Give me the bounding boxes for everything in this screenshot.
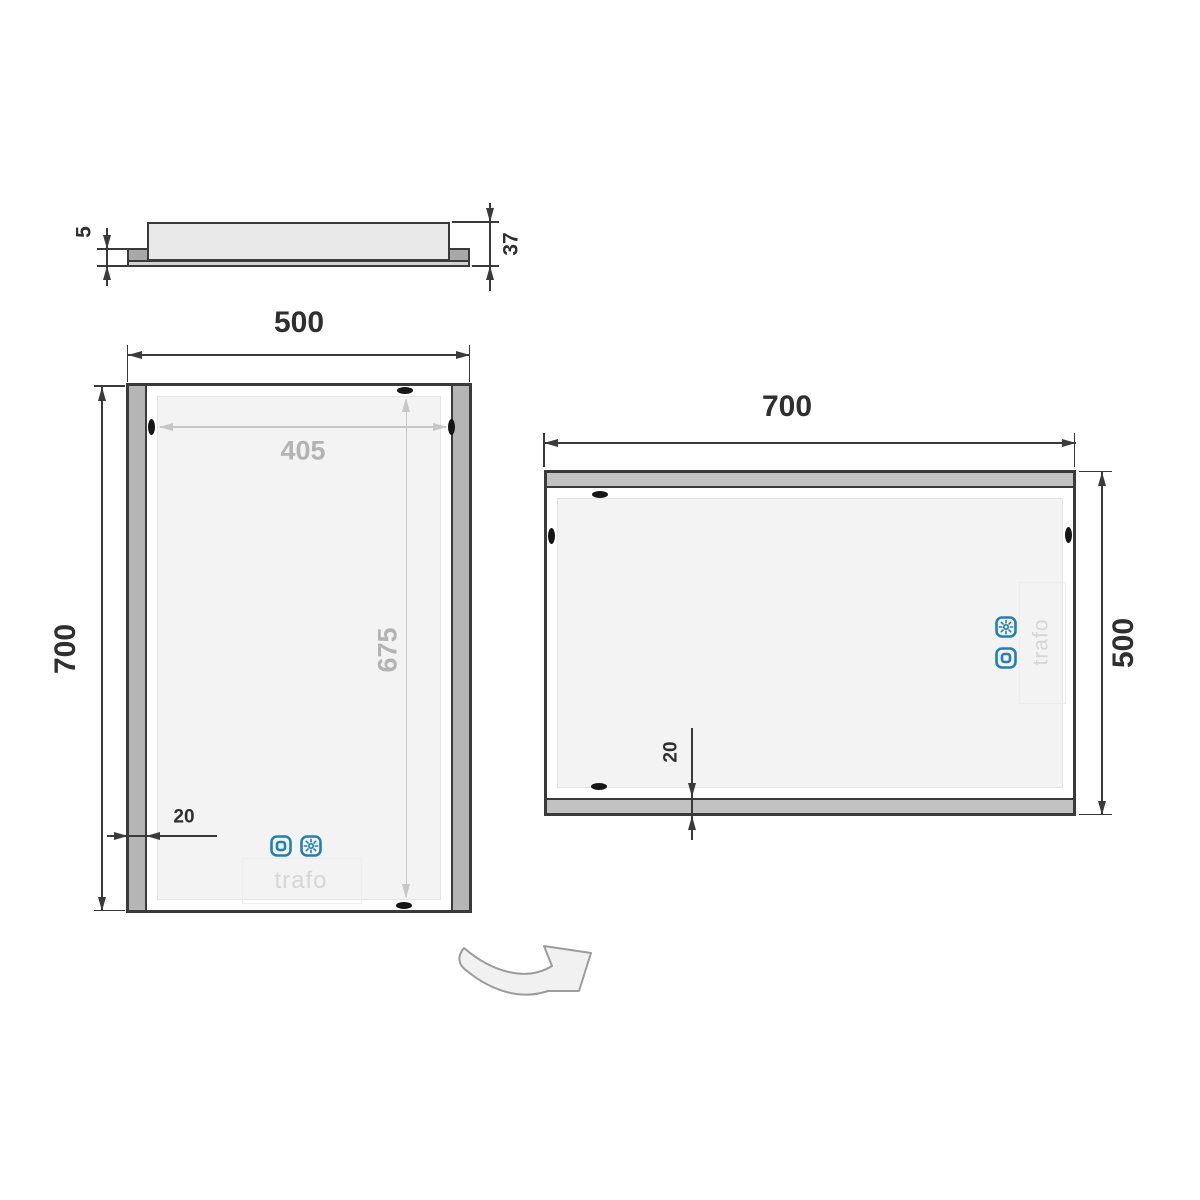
arrowhead-right-icon bbox=[114, 832, 128, 840]
portrait-height-label: 700 bbox=[51, 624, 81, 674]
arrowhead-left-icon bbox=[544, 439, 558, 447]
landscape-mirror-surface bbox=[557, 498, 1063, 788]
rotate-arrow-icon bbox=[440, 920, 620, 1030]
profile-depth-label: 37 bbox=[501, 232, 522, 255]
landscape-height-label: 500 bbox=[1109, 618, 1139, 668]
profile-thickness-ext-top bbox=[97, 248, 127, 250]
portrait-illum-width-dim-line bbox=[160, 426, 446, 428]
portrait-width-dim-line bbox=[128, 354, 470, 356]
portrait-mount-dot-bottom bbox=[396, 902, 412, 909]
technical-drawing-canvas: 5 37 405 675 500 700 20 bbox=[0, 0, 1200, 1200]
portrait-strip-width-label: 20 bbox=[173, 808, 194, 827]
arrowhead-down-icon bbox=[103, 235, 111, 249]
landscape-height-dim-line bbox=[1101, 472, 1103, 815]
portrait-width-ext-right bbox=[469, 345, 471, 382]
brightness-icon bbox=[995, 616, 1017, 638]
arrowhead-down-icon bbox=[402, 884, 410, 898]
landscape-height-ext-top bbox=[1079, 471, 1112, 473]
landscape-mount-dot-left bbox=[548, 528, 555, 544]
brightness-icon bbox=[300, 835, 322, 857]
landscape-led-strip-bottom bbox=[547, 798, 1073, 813]
arrowhead-up-icon bbox=[688, 816, 696, 830]
portrait-led-strip-left bbox=[129, 386, 147, 910]
touch-switch-icon bbox=[995, 647, 1017, 669]
landscape-width-ext-right bbox=[1074, 433, 1076, 467]
portrait-height-dim-line bbox=[101, 387, 103, 911]
portrait-mount-dot-left bbox=[148, 419, 155, 435]
landscape-width-label: 700 bbox=[762, 392, 812, 422]
profile-base-strip bbox=[127, 260, 470, 267]
landscape-mount-dot-bottom bbox=[591, 783, 607, 790]
arrowhead-left-icon bbox=[159, 423, 173, 431]
profile-mirror-body bbox=[147, 222, 450, 261]
arrowhead-down-icon bbox=[486, 208, 494, 222]
landscape-led-strip-top bbox=[547, 473, 1073, 488]
portrait-illum-width-label: 405 bbox=[280, 438, 325, 465]
portrait-width-label: 500 bbox=[274, 308, 324, 338]
landscape-height-ext-bottom bbox=[1079, 814, 1112, 816]
landscape-strip-width-label: 20 bbox=[662, 741, 681, 762]
arrowhead-up-icon bbox=[103, 266, 111, 280]
landscape-width-ext-left bbox=[543, 433, 545, 467]
arrowhead-left-icon bbox=[128, 351, 142, 359]
profile-thickness-ext-bottom bbox=[97, 265, 127, 267]
portrait-mount-dot-right bbox=[448, 419, 455, 435]
portrait-trafo-label: trafo bbox=[274, 869, 327, 893]
landscape-width-dim-line bbox=[544, 442, 1076, 444]
portrait-mount-dot-top bbox=[397, 387, 413, 394]
profile-thickness-label: 5 bbox=[74, 226, 95, 238]
portrait-illum-height-dim-line bbox=[406, 399, 408, 897]
portrait-led-strip-right bbox=[451, 386, 469, 910]
portrait-height-ext-top bbox=[94, 385, 125, 387]
arrowhead-right-icon bbox=[433, 423, 447, 431]
portrait-width-ext-left bbox=[127, 345, 129, 382]
landscape-mount-dot-right bbox=[1065, 527, 1072, 543]
landscape-mirror-outline bbox=[544, 470, 1076, 816]
touch-switch-icon bbox=[270, 835, 292, 857]
landscape-trafo-label: trafo bbox=[1031, 618, 1052, 665]
arrowhead-left-icon bbox=[146, 832, 160, 840]
arrowhead-up-icon bbox=[1098, 472, 1106, 486]
landscape-mount-dot-top bbox=[592, 491, 608, 498]
arrowhead-down-icon bbox=[688, 783, 696, 797]
arrowhead-up-icon bbox=[402, 398, 410, 412]
portrait-height-ext-bottom bbox=[94, 910, 125, 912]
arrowhead-up-icon bbox=[98, 387, 106, 401]
portrait-illum-height-label: 675 bbox=[375, 627, 402, 672]
arrowhead-up-icon bbox=[486, 266, 494, 280]
